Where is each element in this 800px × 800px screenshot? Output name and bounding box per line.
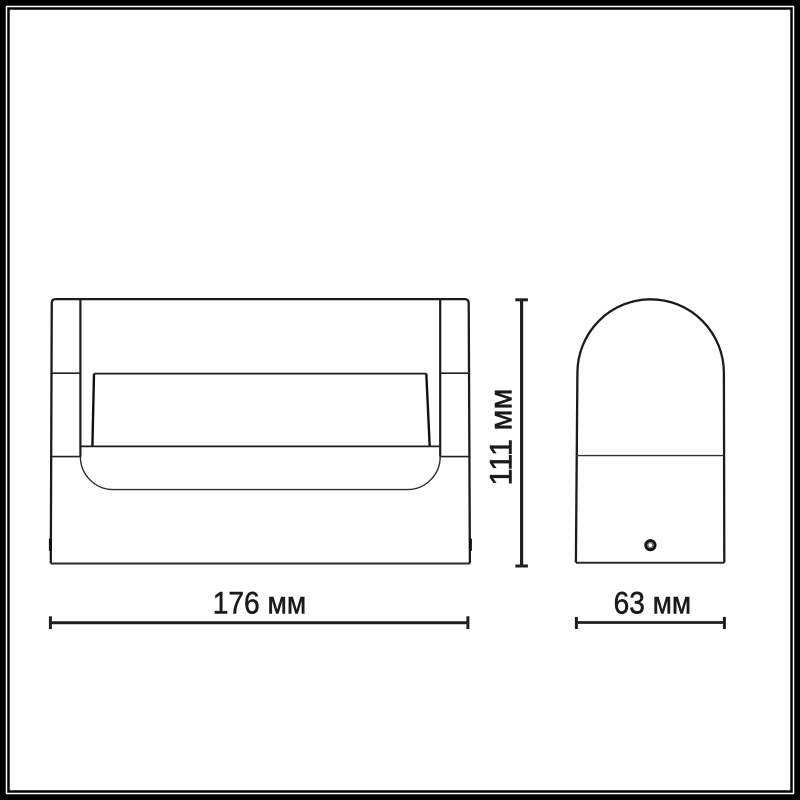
svg-text:176 мм: 176 мм: [213, 585, 307, 620]
svg-text:63 мм: 63 мм: [614, 585, 692, 620]
svg-text:111 мм: 111 мм: [484, 389, 519, 486]
